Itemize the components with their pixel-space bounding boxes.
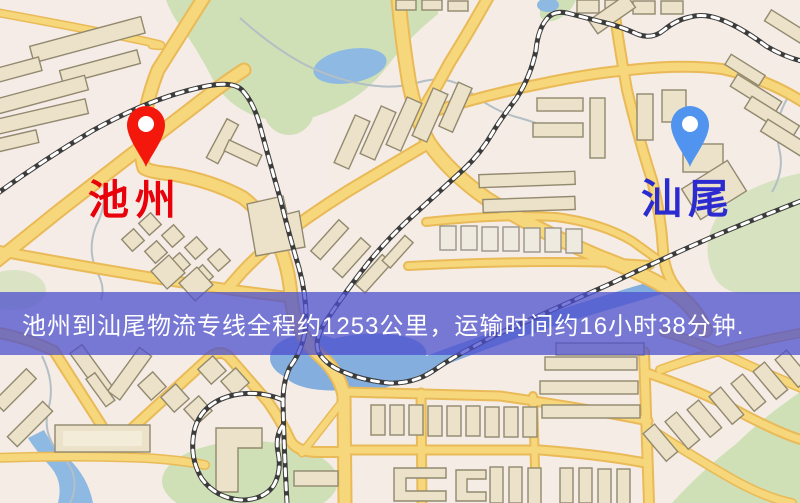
destination-city-label: 汕尾 — [641, 179, 735, 220]
map-canvas[interactable]: 池州 汕尾 池州到汕尾物流专线全程约1253公里，运输时间约16小时38分钟. — [0, 0, 800, 503]
route-info-text: 池州到汕尾物流专线全程约1253公里，运输时间约16小时38分钟. — [22, 306, 744, 341]
destination-pin-icon[interactable] — [667, 103, 713, 169]
base-map — [0, 0, 800, 503]
origin-city-label: 池州 — [88, 180, 182, 221]
origin-pin-icon[interactable] — [123, 103, 169, 169]
route-info-banner: 池州到汕尾物流专线全程约1253公里，运输时间约16小时38分钟. — [0, 292, 800, 355]
